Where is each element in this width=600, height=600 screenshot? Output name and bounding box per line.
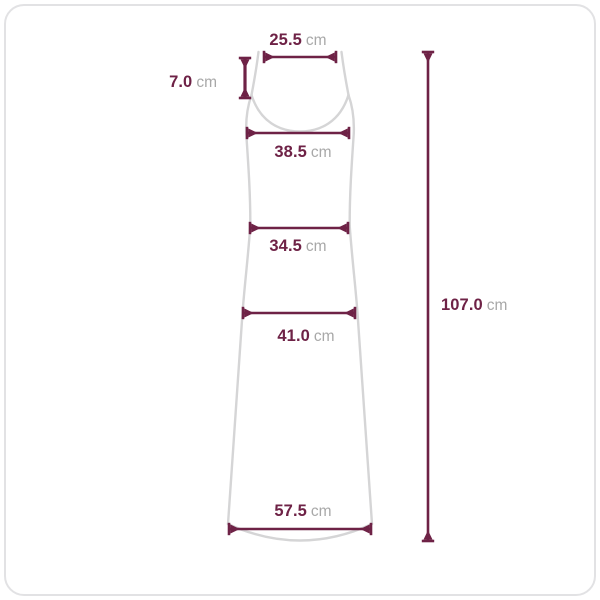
waist-width-value: 34.5: [269, 238, 302, 255]
total-length-unit: cm: [487, 298, 508, 314]
garment-outline: [228, 52, 372, 541]
bust-width-unit: cm: [311, 145, 332, 161]
bust-width-label: 38.5 cm: [274, 144, 331, 161]
hem-outline: [228, 524, 372, 541]
right-strap-outline: [342, 52, 349, 95]
waist-width-unit: cm: [306, 239, 327, 255]
hip-width-value: 41.0: [277, 328, 310, 345]
bust-width-value: 38.5: [274, 144, 307, 161]
total-length-label: 107.0 cm: [441, 297, 507, 314]
shoulder-width-unit: cm: [306, 33, 327, 49]
shoulder-width-value: 25.5: [269, 32, 302, 49]
shoulder-width-label: 25.5 cm: [269, 32, 326, 49]
neckline-outline: [252, 95, 349, 132]
hip-width-label: 41.0 cm: [277, 328, 334, 345]
left-strap-outline: [252, 52, 259, 95]
size-diagram-canvas: 25.5 cm 7.0 cm 38.5 cm 34.5 cm 41.0 cm 1…: [0, 0, 600, 600]
strap-length-value: 7.0: [169, 74, 192, 91]
left-side-outline: [228, 95, 252, 524]
hem-width-value: 57.5: [274, 503, 307, 520]
dimension-lines: [229, 52, 428, 541]
hip-width-unit: cm: [314, 329, 335, 345]
strap-length-unit: cm: [196, 75, 217, 91]
strap-length-label: 7.0 cm: [169, 74, 217, 91]
hem-width-label: 57.5 cm: [274, 503, 331, 520]
hem-width-unit: cm: [311, 504, 332, 520]
waist-width-label: 34.5 cm: [269, 238, 326, 255]
total-length-value: 107.0: [441, 297, 483, 314]
right-side-outline: [349, 95, 373, 524]
